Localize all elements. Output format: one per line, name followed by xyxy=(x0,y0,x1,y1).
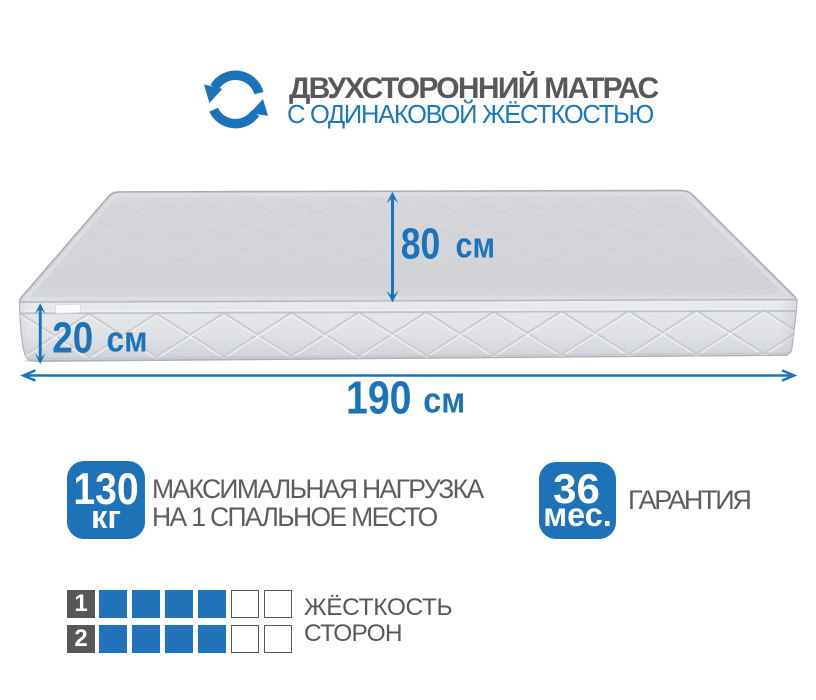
svg-text:см: см xyxy=(456,225,496,266)
svg-text:см: см xyxy=(107,319,148,360)
svg-text:80: 80 xyxy=(401,220,441,269)
svg-text:190: 190 xyxy=(346,372,412,424)
svg-text:см: см xyxy=(423,380,465,421)
svg-text:20: 20 xyxy=(52,314,93,363)
